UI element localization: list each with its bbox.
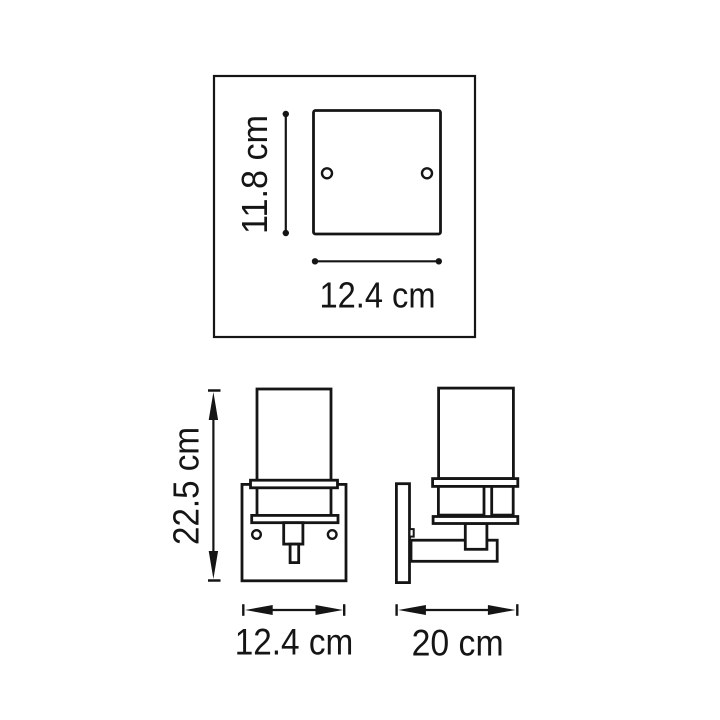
svg-text:11.8 cm: 11.8 cm xyxy=(234,115,275,234)
svg-text:20 cm: 20 cm xyxy=(412,622,504,664)
svg-text:22.5 cm: 22.5 cm xyxy=(166,427,207,545)
svg-text:12.4 cm: 12.4 cm xyxy=(320,275,436,316)
svg-text:12.4 cm: 12.4 cm xyxy=(235,621,354,663)
